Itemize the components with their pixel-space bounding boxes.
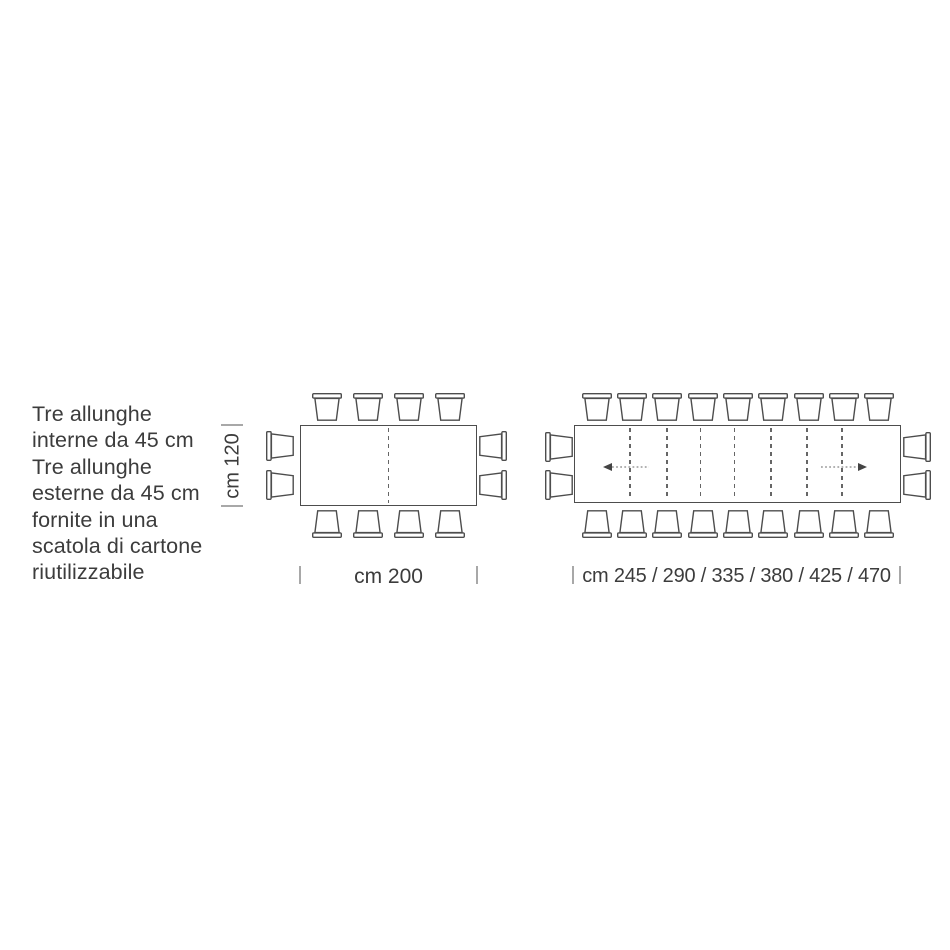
chair-icon bbox=[758, 393, 788, 421]
leaf-divider-line bbox=[770, 428, 772, 500]
chair-icon bbox=[758, 510, 788, 538]
extension-arrow-left bbox=[603, 461, 649, 473]
leaf-divider-line bbox=[666, 428, 668, 500]
chair-icon bbox=[794, 510, 824, 538]
chair-icon bbox=[435, 510, 465, 538]
chair-icon bbox=[479, 470, 507, 500]
chair-icon bbox=[394, 393, 424, 421]
height-dimension: cm 120 bbox=[220, 424, 246, 507]
chair-icon bbox=[688, 510, 718, 538]
chair-icon bbox=[617, 393, 647, 421]
chair-icon bbox=[582, 393, 612, 421]
chair-icon bbox=[545, 432, 573, 462]
product-description: Tre allunghe interne da 45 cm Tre allung… bbox=[32, 401, 202, 586]
chair-icon bbox=[266, 470, 294, 500]
description-line: fornite in una bbox=[32, 507, 202, 533]
chair-icon bbox=[617, 510, 647, 538]
table-top-extended bbox=[574, 425, 901, 503]
leaf-divider-line bbox=[388, 428, 390, 503]
chair-icon bbox=[903, 432, 931, 462]
chair-icon bbox=[435, 393, 465, 421]
width-dimension-closed: cm 200 bbox=[299, 565, 478, 586]
chair-icon bbox=[652, 393, 682, 421]
chair-icon bbox=[829, 393, 859, 421]
width-dimension-extended: cm 245 / 290 / 335 / 380 / 425 / 470 bbox=[572, 565, 901, 586]
description-line: interne da 45 cm bbox=[32, 427, 202, 453]
chair-icon bbox=[829, 510, 859, 538]
chair-icon bbox=[723, 510, 753, 538]
chair-icon bbox=[353, 510, 383, 538]
chair-icon bbox=[864, 393, 894, 421]
chair-icon bbox=[582, 510, 612, 538]
chair-icon bbox=[353, 393, 383, 421]
dimension-tick bbox=[221, 505, 243, 507]
description-line: riutilizzabile bbox=[32, 559, 202, 585]
chair-icon bbox=[545, 470, 573, 500]
chair-icon bbox=[266, 431, 294, 461]
leaf-divider-line bbox=[700, 428, 702, 500]
description-line: Tre allunghe bbox=[32, 401, 202, 427]
extension-arrow-right bbox=[821, 461, 867, 473]
chair-icon bbox=[312, 393, 342, 421]
dimension-tick bbox=[476, 566, 478, 584]
product-dimension-diagram: Tre allunghe interne da 45 cm Tre allung… bbox=[0, 0, 950, 950]
chair-icon bbox=[794, 393, 824, 421]
chair-icon bbox=[723, 393, 753, 421]
leaf-divider-line bbox=[734, 428, 736, 500]
chair-icon bbox=[394, 510, 424, 538]
chair-icon bbox=[479, 431, 507, 461]
description-line: scatola di cartone bbox=[32, 533, 202, 559]
chair-icon bbox=[652, 510, 682, 538]
width-dimension-label: cm 245 / 290 / 335 / 380 / 425 / 470 bbox=[572, 565, 901, 588]
chair-icon bbox=[312, 510, 342, 538]
dimension-tick bbox=[221, 424, 243, 426]
chair-icon bbox=[903, 470, 931, 500]
leaf-divider-line bbox=[806, 428, 808, 500]
width-dimension-label: cm 200 bbox=[299, 565, 478, 589]
chair-icon bbox=[864, 510, 894, 538]
description-line: esterne da 45 cm bbox=[32, 480, 202, 506]
table-top-closed bbox=[300, 425, 477, 506]
description-line: Tre allunghe bbox=[32, 454, 202, 480]
chair-icon bbox=[688, 393, 718, 421]
height-dimension-label: cm 120 bbox=[222, 433, 245, 499]
dimension-tick bbox=[899, 566, 901, 584]
